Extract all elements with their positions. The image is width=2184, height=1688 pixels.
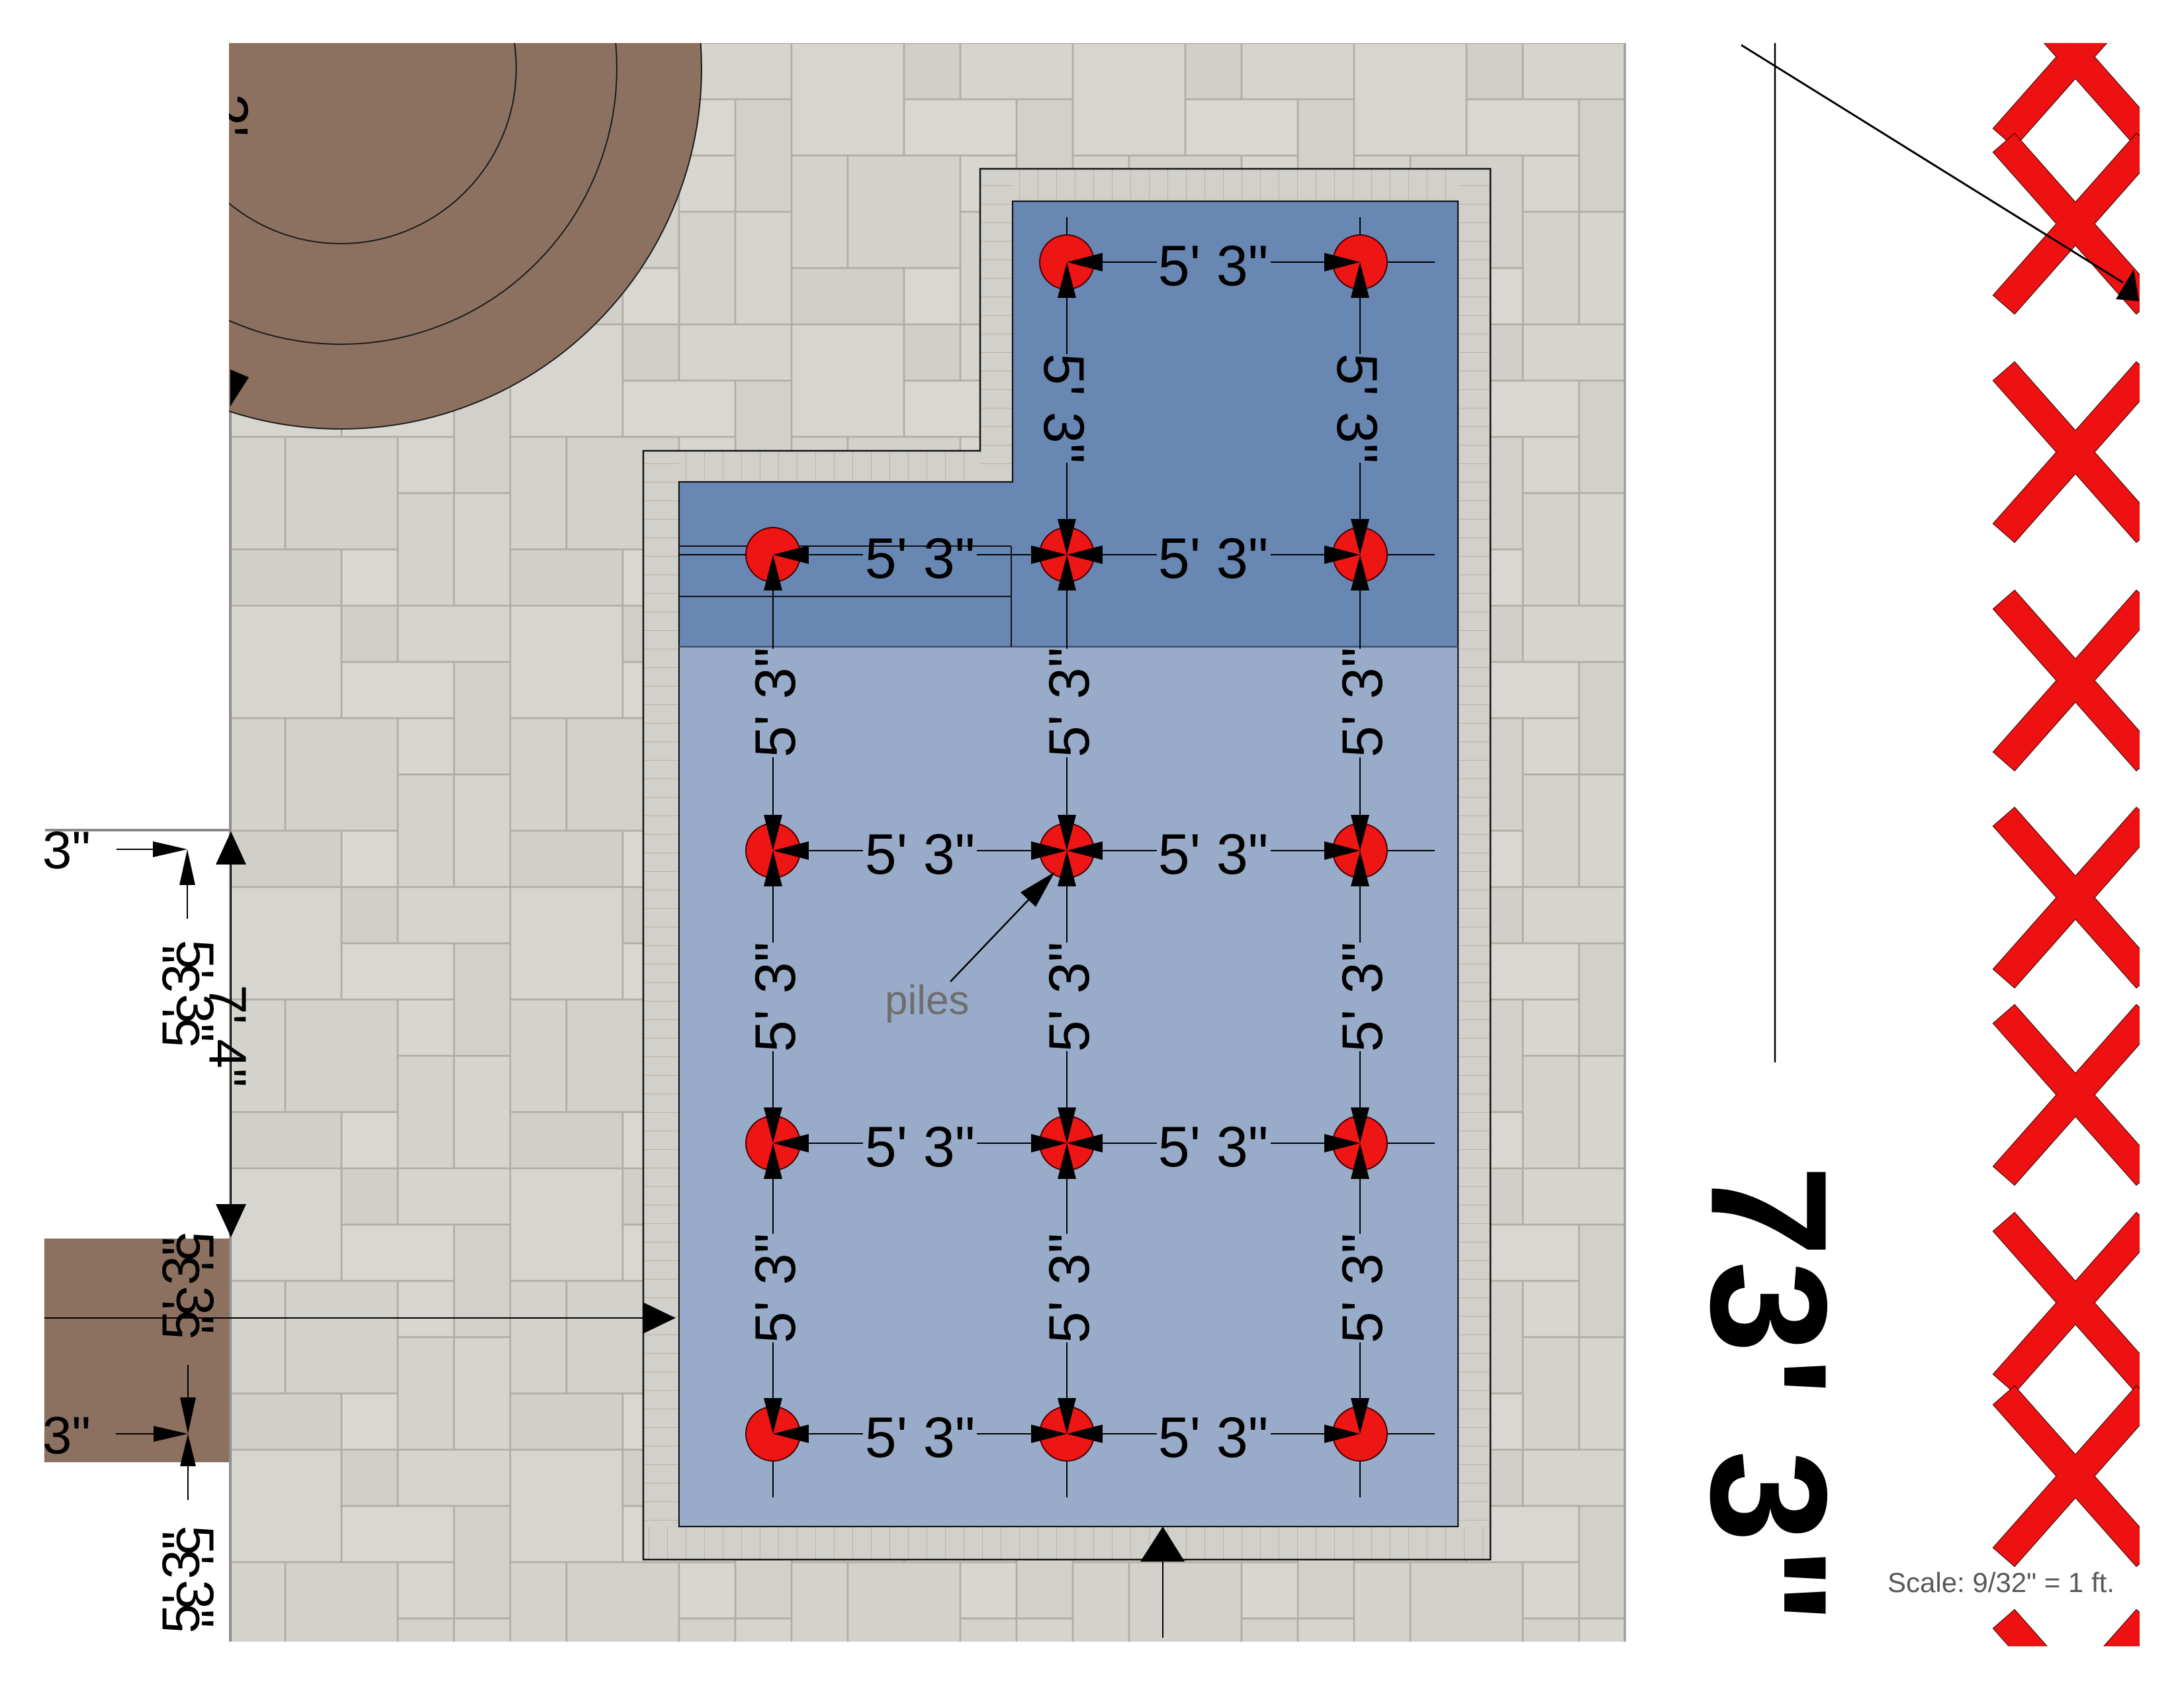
svg-text:5' 3": 5' 3" [1325, 353, 1388, 464]
svg-text:5' 3": 5' 3" [744, 1233, 807, 1344]
svg-text:5' 3": 5' 3" [1331, 647, 1394, 758]
svg-text:5' 3": 5' 3" [1158, 234, 1269, 298]
svg-text:piles: piles [885, 978, 970, 1023]
svg-text:5' 3": 5' 3" [865, 823, 976, 886]
svg-text:3": 3" [42, 1406, 91, 1465]
svg-text:3": 3" [42, 821, 91, 880]
svg-text:5' 3": 5' 3" [152, 1531, 210, 1634]
svg-text:5' 3": 5' 3" [1158, 527, 1269, 590]
svg-text:5' 3": 5' 3" [865, 527, 976, 590]
svg-text:5' 3": 5' 3" [1158, 823, 1269, 886]
svg-text:5' 3": 5' 3" [1158, 1115, 1269, 1179]
svg-text:5' 3": 5' 3" [744, 647, 807, 758]
svg-text:5' 3": 5' 3" [865, 1406, 976, 1470]
svg-text:5' 3": 5' 3" [1331, 942, 1394, 1053]
svg-text:2': 2' [195, 93, 261, 137]
svg-text:5' 3": 5' 3" [1038, 1233, 1101, 1344]
svg-text:5' 3": 5' 3" [152, 1237, 210, 1340]
svg-text:5' 3": 5' 3" [1331, 1233, 1394, 1344]
svg-text:5' 3": 5' 3" [1158, 1406, 1269, 1470]
svg-text:5' 3": 5' 3" [1038, 647, 1101, 758]
svg-text:5' 3": 5' 3" [1038, 942, 1101, 1053]
svg-text:5' 3": 5' 3" [152, 945, 210, 1048]
svg-text:5' 3": 5' 3" [1032, 353, 1095, 464]
svg-text:73' 3": 73' 3" [1677, 1165, 1862, 1629]
svg-text:5' 3": 5' 3" [865, 1115, 976, 1179]
svg-text:5' 3": 5' 3" [744, 942, 807, 1053]
svg-text:Scale: 9/32" = 1 ft.: Scale: 9/32" = 1 ft. [1888, 1567, 2115, 1598]
